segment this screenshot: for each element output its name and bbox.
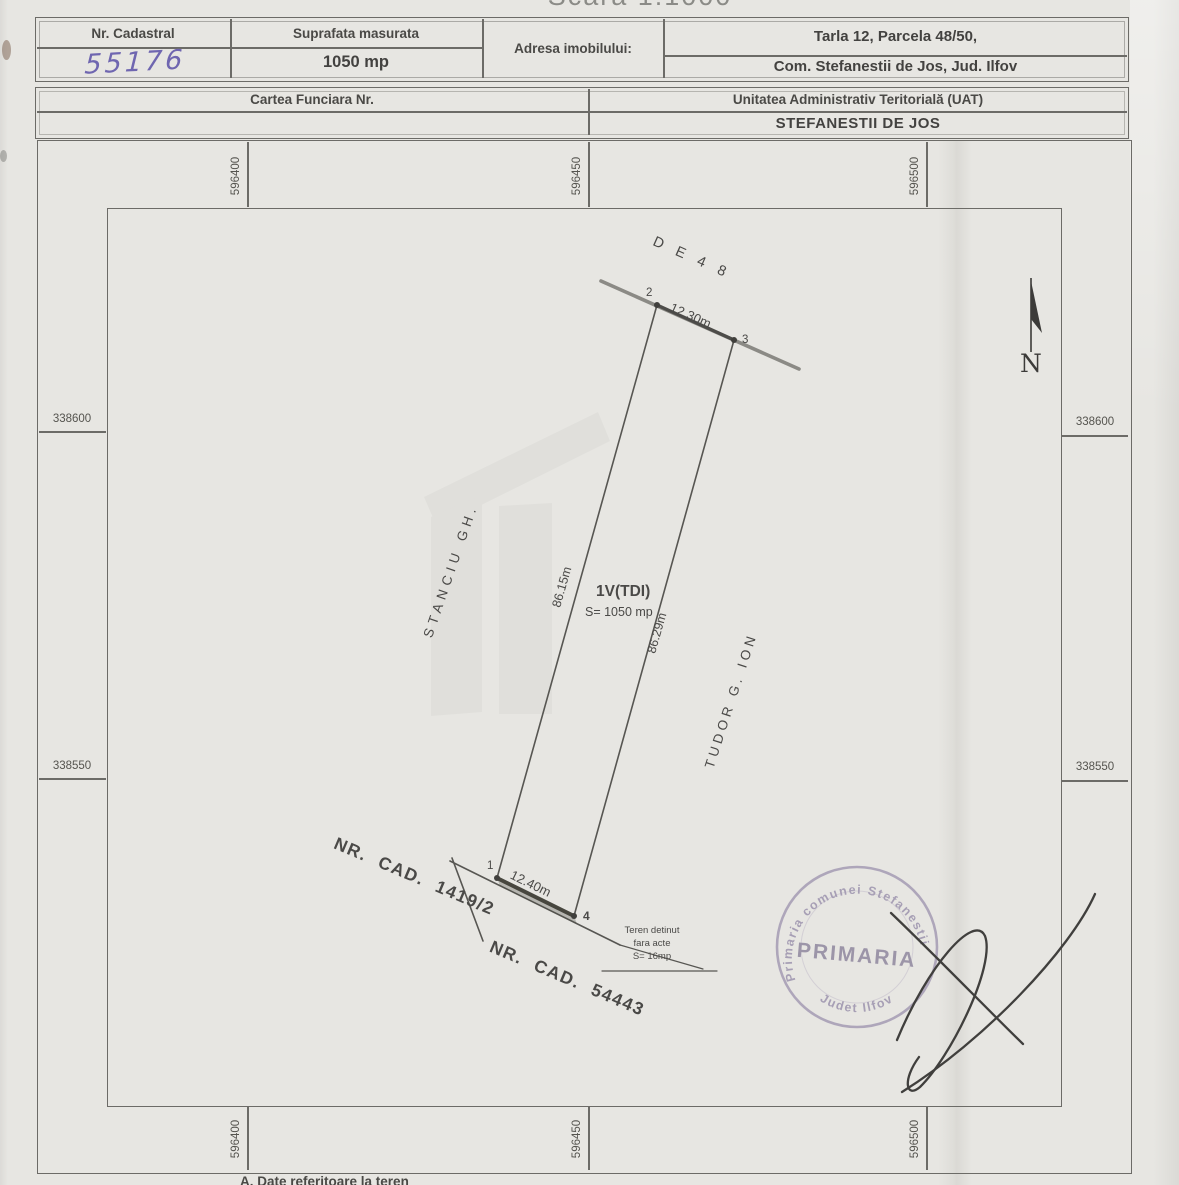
north-arrow-icon: N — [1020, 278, 1042, 378]
stamp-center-text: PRIMARIA — [796, 939, 917, 972]
north-label: N — [1020, 349, 1042, 378]
point-label-4: 4 — [583, 909, 590, 923]
note-block: Teren detinut fara acte S= 16mp — [600, 925, 704, 963]
point-label-2: 2 — [646, 287, 652, 299]
point-label-1: 1 — [487, 860, 493, 872]
parcel-id-label: 1V(TDI) — [596, 583, 650, 601]
map-drawing: N Primaria comunei Stefanestii Judet Ilf… — [0, 0, 1179, 1185]
stamp-arc-bottom-text: Judet Ilfov — [818, 991, 896, 1015]
note-line-3: S= 16mp — [600, 951, 704, 964]
point-label-3: 3 — [742, 334, 748, 346]
svg-text:Judet Ilfov: Judet Ilfov — [818, 991, 896, 1015]
note-line-2: fara acte — [600, 938, 704, 951]
note-line-1: Teren detinut — [600, 925, 704, 938]
cadastral-plan-page: Scara 1:1000 Nr. Cadastral 55176 Suprafa… — [0, 0, 1179, 1185]
footer-caption: A. Date referitoare la teren — [240, 1174, 409, 1185]
parcel-area-label: S= 1050 mp — [585, 605, 653, 619]
